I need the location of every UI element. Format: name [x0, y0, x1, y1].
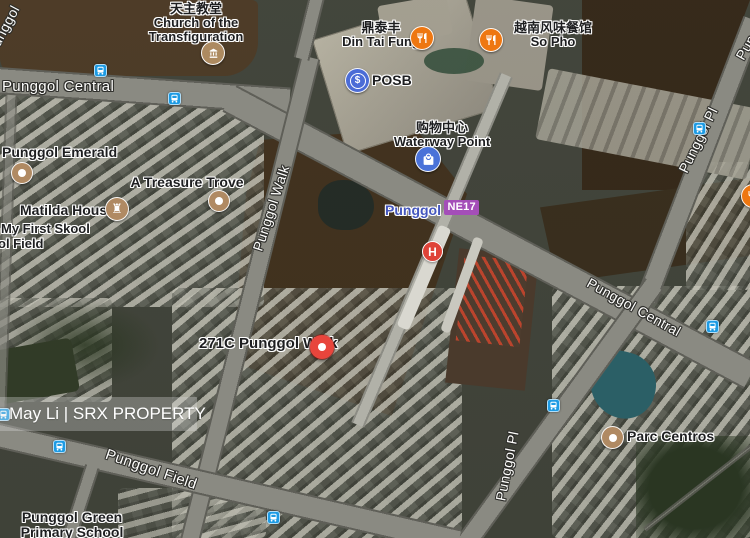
poi-punggol-green-line1: Punggol Green — [21, 510, 124, 525]
posb-icon[interactable]: $ — [345, 68, 370, 93]
punggol-emerald-icon[interactable] — [11, 162, 33, 184]
bus-glyph — [695, 124, 704, 133]
bus-glyph — [96, 66, 105, 75]
poi-punggol-green-line2: Primary School — [21, 525, 124, 538]
poi-church-line1: 天主教堂 — [149, 2, 244, 16]
restaurant-glyph — [416, 32, 428, 44]
poi-din-tai-fung-line2: Din Tai Fung — [342, 35, 420, 49]
bus-stop-icon[interactable] — [267, 511, 280, 524]
poi-waterway-line2: Waterway Point — [394, 135, 490, 149]
pin-dot — [318, 343, 326, 351]
bus-glyph — [708, 322, 717, 331]
poi-dot — [215, 197, 223, 205]
waterway-point-mall-icon[interactable] — [415, 146, 441, 172]
poi-church-line2: Church of the — [149, 16, 244, 30]
station-punggol-label[interactable]: Punggol — [385, 202, 441, 218]
parc-centros-icon[interactable] — [601, 426, 624, 449]
poi-din-tai-fung-label[interactable]: 鼎泰丰 Din Tai Fung — [342, 21, 420, 49]
srx-watermark: May Li | SRX PROPERTY — [0, 397, 197, 431]
poi-so-pho-line2: So Pho — [514, 35, 592, 49]
map-canvas[interactable]: Punggol Central Punggol Walk Punggol Pl … — [0, 0, 750, 538]
rook-glyph: ♜ — [111, 203, 123, 216]
bus-glyph — [269, 513, 278, 522]
bus-stop-icon[interactable] — [94, 64, 107, 77]
poi-dot — [18, 169, 26, 177]
so-pho-restaurant-icon[interactable] — [479, 28, 503, 52]
bus-stop-icon[interactable] — [547, 399, 560, 412]
ne17-badge[interactable]: NE17 — [444, 200, 479, 215]
poi-dot — [609, 434, 617, 442]
poi-so-pho-label[interactable]: 越南风味餐馆 So Pho — [514, 21, 592, 49]
poi-waterway-line1: 购物中心 — [394, 121, 490, 135]
bus-glyph — [170, 94, 179, 103]
marker-271c-pin[interactable] — [310, 335, 334, 359]
bus-glyph — [55, 442, 64, 451]
treasure-trove-icon[interactable] — [208, 190, 230, 212]
matilda-house-icon[interactable]: ♜ — [105, 197, 129, 221]
hospital-icon[interactable]: H — [422, 241, 443, 262]
church-glyph — [207, 47, 220, 60]
bus-stop-icon[interactable] — [706, 320, 719, 333]
poi-church-line3: Transfiguration — [149, 30, 244, 44]
restaurant-glyph — [485, 34, 497, 46]
poi-din-tai-fung-line1: 鼎泰丰 — [342, 21, 420, 35]
bus-stop-icon[interactable] — [168, 92, 181, 105]
poi-my-first-skool-line1[interactable]: My First Skool — [1, 222, 90, 236]
pond-top — [424, 48, 484, 74]
poi-posb-label[interactable]: POSB — [372, 73, 412, 87]
bus-stop-icon[interactable] — [53, 440, 66, 453]
shopping-bag-glyph — [422, 153, 435, 166]
dollar-glyph: $ — [355, 76, 361, 86]
poi-treasure-trove-label[interactable]: A Treasure Trove — [130, 175, 243, 189]
din-tai-fung-restaurant-icon[interactable] — [410, 26, 434, 50]
h-glyph: H — [428, 245, 437, 259]
poi-waterway-point-label[interactable]: 购物中心 Waterway Point — [394, 121, 490, 149]
poi-punggol-emerald-label[interactable]: Punggol Emerald — [2, 145, 117, 159]
poi-parc-centros-label[interactable]: Parc Centros — [627, 429, 714, 443]
poi-punggol-green-label[interactable]: Punggol Green Primary School — [21, 510, 124, 538]
poi-church-label[interactable]: 天主教堂 Church of the Transfiguration — [149, 2, 244, 44]
road-label-punggol-central-top: Punggol Central — [2, 80, 114, 94]
poi-my-first-skool-line2[interactable]: ol Field — [0, 237, 44, 251]
poi-matilda-house-label[interactable]: Matilda House — [20, 203, 115, 217]
poi-so-pho-line1: 越南风味餐馆 — [514, 21, 592, 35]
bus-glyph — [549, 401, 558, 410]
church-icon[interactable] — [201, 41, 225, 65]
bus-stop-icon[interactable] — [693, 122, 706, 135]
